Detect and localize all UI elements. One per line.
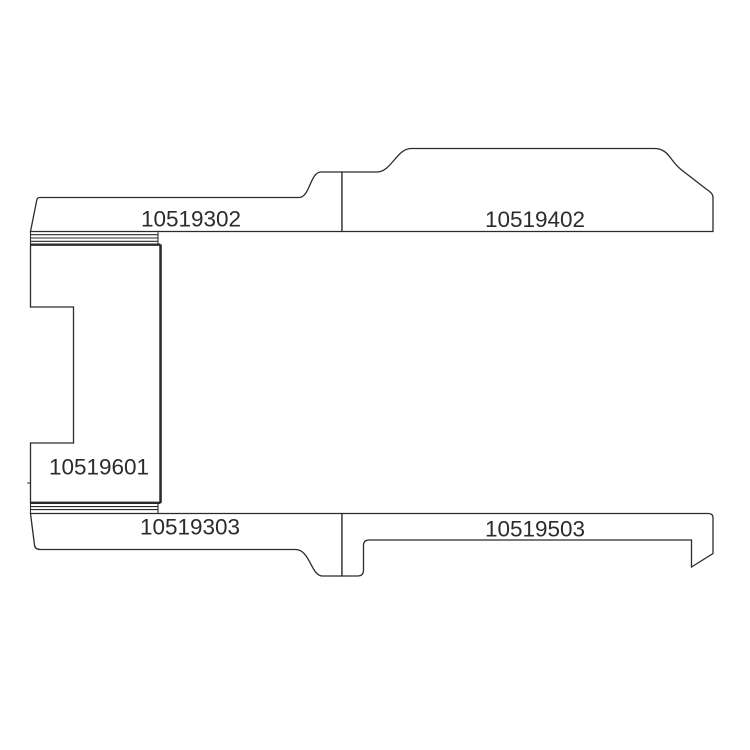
part-label-10519601: 10519601 bbox=[49, 455, 149, 480]
part-label-10519503: 10519503 bbox=[485, 517, 585, 542]
top-ribbed-strip bbox=[31, 232, 159, 245]
part-label-10519402: 10519402 bbox=[485, 207, 585, 232]
diagram-canvas: 10519302 10519402 10519601 10519303 1051… bbox=[0, 0, 750, 750]
part-label-10519303: 10519303 bbox=[140, 515, 240, 540]
part-label-10519302: 10519302 bbox=[141, 207, 241, 232]
parts-diagram: 10519302 10519402 10519601 10519303 1051… bbox=[0, 0, 750, 750]
bottom-ribbed-strip bbox=[31, 503, 159, 514]
